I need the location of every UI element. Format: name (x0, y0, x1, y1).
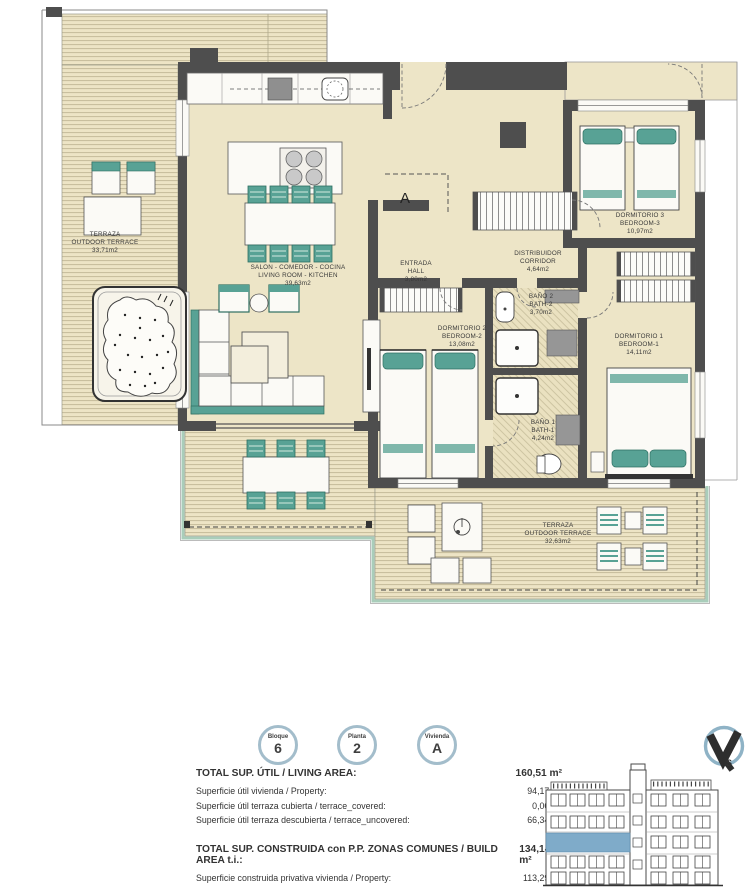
wardrobe-bed2 (380, 288, 462, 312)
room-label-terraza-sur: TERRAZA OUTDOOR TERRACE 32,63m2 (525, 522, 592, 547)
summary-living-header: TOTAL SUP. ÚTIL / LIVING AREA: 160,51 m² (196, 768, 562, 779)
summary-row: Superficie construida privativa vivienda… (196, 873, 562, 883)
area-summary: TOTAL SUP. ÚTIL / LIVING AREA: 160,51 m²… (196, 768, 562, 887)
nightstand-icon (625, 128, 634, 142)
badge-vivienda: Vivienda A (417, 725, 457, 765)
outdoor-dining-set (243, 440, 329, 509)
hot-tub (93, 287, 186, 401)
room-label-salon: SALON - COMEDOR - COCINA LIVING ROOM - K… (251, 264, 346, 289)
room-label-bano2: BAÑO 2 BATH-2 3,70m2 (529, 293, 553, 318)
compass-south-label: S (726, 758, 732, 768)
room-label-dormitorio3: DORMITORIO 3 BEDROOM-3 10,97m2 (616, 212, 664, 237)
floor-plan-drawing (0, 0, 753, 660)
room-label-bano1: BAÑO 1 BATH-1 4,24m2 (531, 419, 555, 444)
toilet-icon (496, 292, 514, 322)
floorplan-page: SALON - COMEDOR - COCINA LIVING ROOM - K… (0, 0, 753, 887)
wardrobe-bed1-a (617, 252, 695, 276)
summary-row: Superficie útil vivienda / Property: 94,… (196, 786, 562, 796)
room-label-dormitorio2: DORMITORIO 2 BEDROOM-2 13,08m2 (438, 325, 486, 350)
room-label-entrada: ENTRADA HALL 3,80m2 (400, 260, 432, 285)
vanity-icon (556, 415, 580, 445)
room-label-distribuidor: DISTRIBUIDOR CORRIDOR 4,64m2 (514, 250, 562, 275)
badge-planta: Planta 2 (337, 725, 377, 765)
building-elevation (543, 762, 723, 887)
tv-unit (363, 320, 380, 412)
room-label-dormitorio1: DORMITORIO 1 BEDROOM-1 14,11m2 (615, 333, 663, 358)
kitchen-counter (187, 73, 383, 104)
badge-bloque: Bloque 6 (258, 725, 298, 765)
oven-icon (268, 78, 292, 100)
summary-build-header: TOTAL SUP. CONSTRUIDA con P.P. ZONAS COM… (196, 844, 562, 866)
summary-row: Superficie útil terraza descubierta / te… (196, 815, 562, 825)
section-marker-letter: A (400, 190, 410, 207)
nightstand-icon (591, 452, 604, 472)
wardrobe-hall (473, 192, 577, 230)
highlighted-floor (546, 833, 630, 852)
wardrobe-bed1-b (617, 280, 695, 302)
room-label-terraza-oeste: TERRAZA OUTDOOR TERRACE 33,71m2 (72, 231, 139, 256)
summary-row: Superficie útil terraza cubierta / terra… (196, 801, 562, 811)
